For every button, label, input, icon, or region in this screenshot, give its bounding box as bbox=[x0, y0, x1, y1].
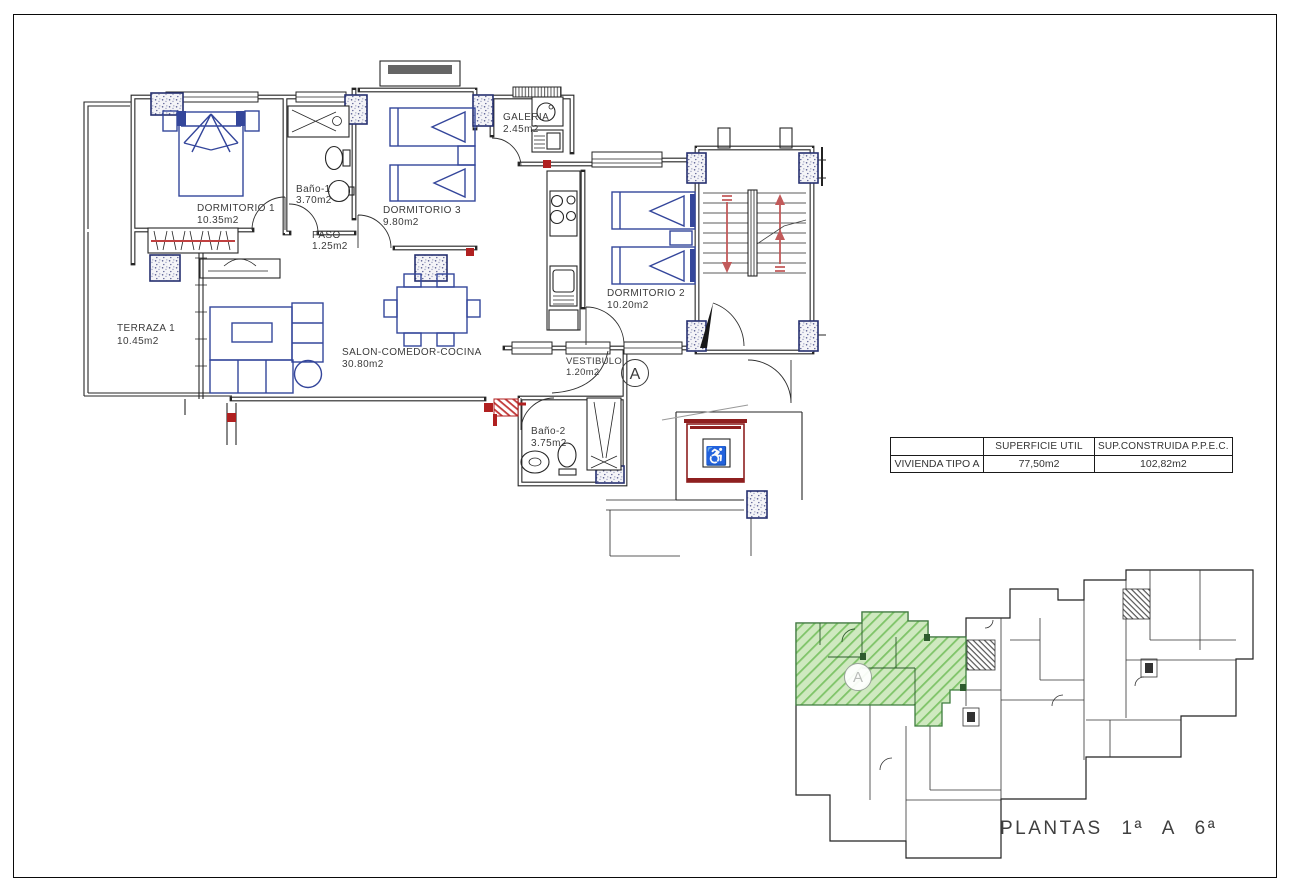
galeria-window-sill bbox=[513, 87, 561, 97]
header-sup-construida: SUP.CONSTRUIDA P.P.E.C. bbox=[1095, 438, 1233, 456]
site-unit-marker: A bbox=[845, 664, 872, 691]
room-label: VESTIBULO bbox=[566, 356, 622, 367]
sofa-set bbox=[210, 303, 323, 393]
stair-vent-left bbox=[718, 128, 730, 148]
room-label: Baño-2 bbox=[531, 426, 566, 437]
room-label: PASO bbox=[312, 230, 341, 241]
table-header-row: SUPERFICIE UTIL SUP.CONSTRUIDA P.P.E.C. bbox=[891, 438, 1233, 456]
area-summary-table: SUPERFICIE UTIL SUP.CONSTRUIDA P.P.E.C. … bbox=[890, 437, 1233, 473]
room-area: 3.70m2 bbox=[296, 195, 332, 206]
door-arcs bbox=[252, 138, 791, 430]
beds-dormitorio2 bbox=[612, 192, 695, 284]
room-area: 10.20m2 bbox=[607, 300, 649, 311]
site-stair-core-1 bbox=[967, 640, 995, 670]
room-area: 3.75m2 bbox=[531, 438, 567, 449]
room-area: 10.35m2 bbox=[197, 215, 239, 226]
room-area: 1.25m2 bbox=[312, 241, 348, 252]
site-stair-core-2 bbox=[1123, 589, 1150, 619]
room-area: 30.80m2 bbox=[342, 359, 384, 370]
room-area: 1.20m2 bbox=[566, 367, 600, 378]
room-area: 10.45m2 bbox=[117, 336, 159, 347]
elevator: ♿ bbox=[606, 405, 802, 556]
stair-break-line bbox=[757, 220, 806, 244]
site-unit-marker-letter: A bbox=[853, 669, 863, 686]
room-label: GALERIA bbox=[503, 112, 549, 123]
superficie-util-value: 77,50m2 bbox=[984, 456, 1095, 473]
room-area: 9.80m2 bbox=[383, 217, 419, 228]
dormitorio3-closet-bay bbox=[380, 61, 460, 86]
red-fixtures bbox=[227, 160, 551, 426]
dining-table bbox=[384, 274, 480, 346]
room-label: DORMITORIO 3 bbox=[383, 205, 461, 216]
wheelchair-icon: ♿ bbox=[705, 445, 727, 466]
stairwell bbox=[700, 190, 806, 348]
sup-construida-value: 102,82m2 bbox=[1095, 456, 1233, 473]
bed-dormitorio1 bbox=[163, 111, 259, 196]
room-label: TERRAZA 1 bbox=[117, 323, 175, 334]
table-row: VIVIENDA TIPO A 77,50m2 102,82m2 bbox=[891, 456, 1233, 473]
room-label: SALON-COMEDOR-COCINA bbox=[342, 347, 482, 358]
header-empty bbox=[891, 438, 984, 456]
site-plan-caption: PLANTAS 1ª A 6ª bbox=[1000, 818, 1217, 840]
kitchen-counter bbox=[547, 171, 580, 330]
room-area: 2.45m2 bbox=[503, 124, 539, 135]
main-floor-plan: ♿ bbox=[84, 61, 826, 556]
room-label: DORMITORIO 2 bbox=[607, 288, 685, 299]
row-label: VIVIENDA TIPO A bbox=[891, 456, 984, 473]
room-label: DORMITORIO 1 bbox=[197, 203, 275, 214]
room-label: Baño-1 bbox=[296, 184, 331, 195]
stair-vent-right bbox=[780, 128, 792, 148]
beds-dormitorio3 bbox=[390, 108, 475, 201]
site-plan: A bbox=[796, 570, 1253, 858]
heater-unit bbox=[494, 399, 518, 416]
header-superficie-util: SUPERFICIE UTIL bbox=[984, 438, 1095, 456]
walls bbox=[133, 90, 812, 484]
unit-marker-letter: A bbox=[630, 366, 641, 383]
